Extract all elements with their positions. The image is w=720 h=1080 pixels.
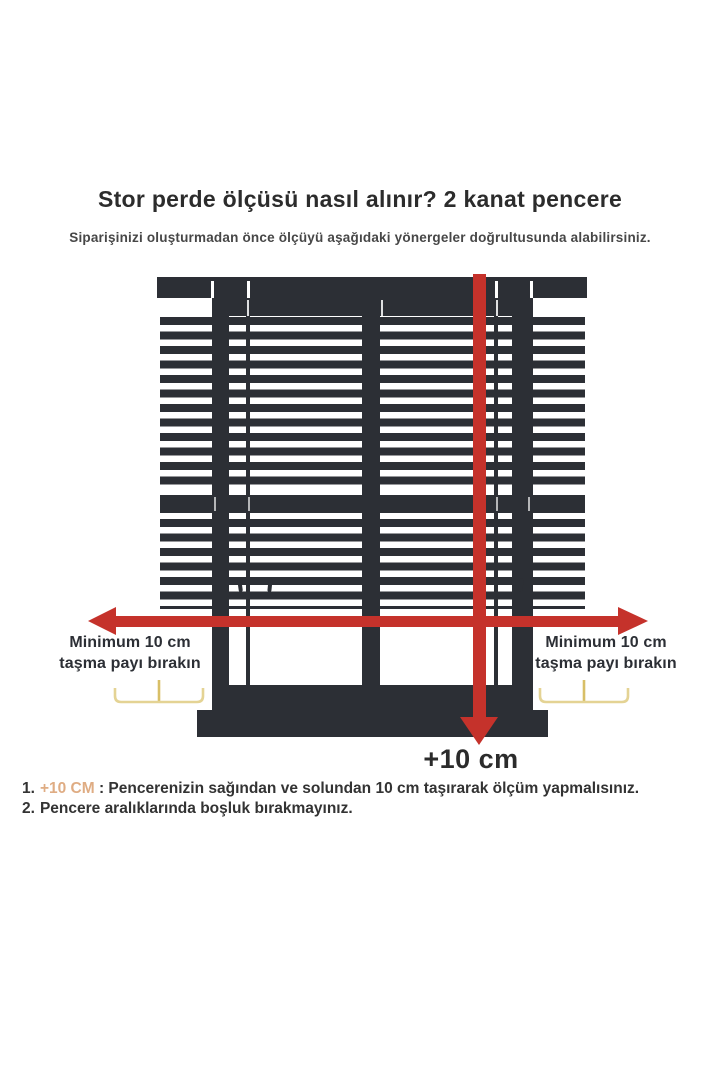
blind-slats-lower (160, 519, 585, 609)
footnote-2-text: Pencere aralıklarında boşluk bırakmayını… (40, 800, 353, 817)
footnote-2: 2.Pencere aralıklarında boşluk bırakmayı… (22, 799, 712, 819)
vertical-measure-arrowhead-icon (460, 717, 498, 745)
page-title: Stor perde ölçüsü nasıl alınır? 2 kanat … (0, 186, 720, 213)
rail-separator (496, 300, 498, 316)
footnote-2-number: 2. (22, 800, 35, 817)
left-brace-icon (112, 677, 206, 709)
footnote-1-number: 1. (22, 780, 35, 797)
right-brace-icon (537, 677, 631, 709)
instruction-page: Stor perde ölçüsü nasıl alınır? 2 kanat … (0, 0, 720, 1080)
right-margin-label-line2: taşma payı bırakın (523, 653, 689, 674)
footnotes: 1.+10 CM : Pencerenizin sağından ve solu… (22, 779, 712, 818)
footnote-1-text: : Pencerenizin sağından ve solundan 10 c… (95, 780, 639, 797)
footnote-1: 1.+10 CM : Pencerenizin sağından ve solu… (22, 779, 712, 799)
left-margin-label-line1: Minimum 10 cm (47, 632, 213, 653)
page-subtitle: Siparişinizi oluşturmadan önce ölçüyü aş… (0, 230, 720, 245)
cassette-bracket-notch (211, 281, 214, 298)
right-margin-label-line1: Minimum 10 cm (523, 632, 689, 653)
thick-slat-tick (248, 497, 250, 511)
rail-separator (247, 300, 249, 316)
vertical-measure-arrow-shaft (473, 274, 486, 718)
thick-slat-tick (528, 497, 530, 511)
blind-slats-upper (160, 317, 585, 491)
rail-separator (381, 300, 383, 316)
plus-10cm-label: +10 cm (388, 744, 554, 775)
horizontal-measure-left-arrowhead-icon (88, 607, 116, 635)
horizontal-measure-right-arrowhead-icon (618, 607, 648, 635)
cassette-bracket-notch (530, 281, 533, 298)
cassette-bracket-notch (495, 281, 498, 298)
blind-thick-slat (160, 495, 585, 513)
footnote-1-highlight: +10 CM (40, 780, 95, 797)
left-margin-label: Minimum 10 cm taşma payı bırakın (47, 632, 213, 674)
thick-slat-tick (214, 497, 216, 511)
horizontal-measure-arrow-shaft (113, 616, 619, 627)
right-margin-label: Minimum 10 cm taşma payı bırakın (523, 632, 689, 674)
blind-cassette (157, 277, 587, 298)
thick-slat-tick (496, 497, 498, 511)
left-margin-label-line2: taşma payı bırakın (47, 653, 213, 674)
cassette-bracket-notch (247, 281, 250, 298)
